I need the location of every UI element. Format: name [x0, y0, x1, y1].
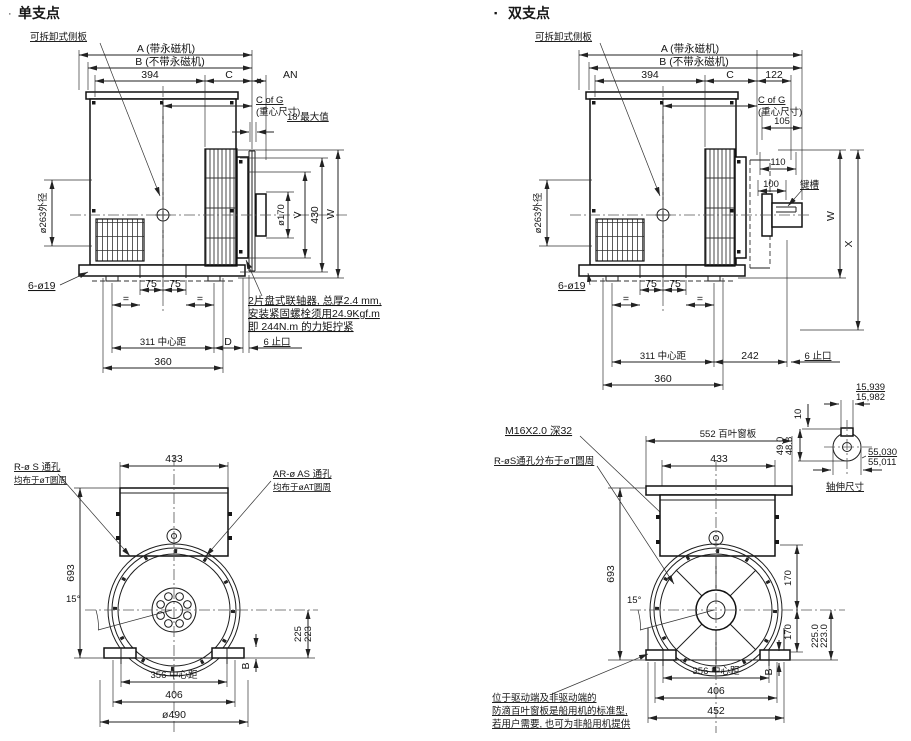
- dim-394: 394: [641, 69, 659, 81]
- dim-W: W: [325, 209, 337, 219]
- dim-433: 433: [710, 453, 728, 465]
- dim-100: 100: [763, 179, 779, 190]
- rs-holes-label: R-ø S 通孔: [14, 462, 61, 473]
- bearing-bracket: [750, 160, 772, 268]
- dim-110: 110: [770, 157, 785, 168]
- keyway-label: 键槽: [800, 179, 820, 191]
- generator-dimension-drawing: · 单支点 ▪ 双支点 可拆卸式侧板: [0, 0, 911, 741]
- dim-W: W: [825, 211, 837, 221]
- rs-holes-label-2: 均布于øT圆周: [14, 475, 67, 485]
- frame-housing: [660, 495, 775, 556]
- eq-b: =: [697, 293, 703, 305]
- dim-242: 242: [741, 350, 759, 362]
- dim-360: 360: [154, 356, 172, 368]
- dim-d170: ø170: [276, 204, 287, 226]
- air-grille: [96, 219, 144, 261]
- fan-block: [705, 149, 735, 266]
- double-bullet: ▪: [494, 8, 497, 19]
- dim-A: A (带永磁机): [661, 42, 719, 55]
- aras-holes-label: AR-ø AS 通孔: [273, 469, 332, 480]
- shaft-detail-caption: 轴伸尺寸: [826, 481, 865, 493]
- double-section-title: 双支点: [508, 5, 550, 21]
- dim-B: B (不带永磁机): [135, 55, 204, 68]
- dim-X: X: [843, 240, 855, 247]
- louvre-note-1: 位于驱动端及非驱动端的: [492, 692, 597, 704]
- single-bearing-front-view: 433 R-ø S 通孔 均布于øT圆周 AR-ø AS 通孔 均布于øAT圆周…: [14, 453, 332, 733]
- dim-75a: 75: [645, 278, 657, 290]
- dim-6d19: 6-ø19: [28, 280, 56, 292]
- dim-6stop: 6 止口: [805, 350, 832, 362]
- adapter-ring: [735, 157, 746, 258]
- dim-75b: 75: [169, 278, 181, 290]
- dim-B: B: [240, 662, 252, 669]
- dim-693: 693: [65, 564, 77, 582]
- dim-15deg: 15°: [627, 595, 642, 606]
- dim-6d19: 6-ø19: [558, 280, 586, 292]
- dim-311: 311 中心距: [140, 336, 187, 348]
- technical-drawing-page: · 单支点 ▪ 双支点 可拆卸式侧板: [0, 0, 911, 741]
- section-titles: · 单支点 ▪ 双支点: [8, 5, 550, 21]
- dim-6stop: 6 止口: [264, 336, 291, 348]
- double-bearing-side-view: 可拆卸式侧板 A: [532, 31, 864, 390]
- cog-label: C of G: [758, 95, 785, 106]
- dim-360: 360: [654, 373, 672, 385]
- shaft-end-detail: 15,939 15,982 10 49.0 48.8 55,030 55,011…: [775, 382, 897, 493]
- dim-394: 394: [141, 69, 159, 81]
- single-section-title: 单支点: [18, 5, 60, 21]
- adapter-ring: [237, 157, 248, 258]
- shaft-dia-tol-2: 55,011: [868, 457, 896, 468]
- dim-C: C: [225, 69, 233, 81]
- dim-430: 430: [309, 206, 321, 224]
- removable-panel-label: 可拆卸式侧板: [535, 31, 593, 43]
- cog-label: C of G: [256, 95, 283, 106]
- dim-B: B: [763, 668, 775, 675]
- dim-AN: AN: [283, 69, 298, 81]
- coupling-discs: [249, 151, 255, 271]
- dim-10: 10: [793, 409, 804, 420]
- dim-433: 433: [165, 453, 183, 465]
- dim-406: 406: [707, 685, 725, 697]
- dim-170a: 170: [783, 570, 794, 586]
- coupling-note-1: 2片盘式联轴器, 总厚2.4 mm,: [248, 294, 382, 307]
- dim-B: B (不带永磁机): [659, 55, 728, 68]
- dim-223: 223.0: [819, 624, 830, 648]
- dim-170b: 170: [783, 624, 794, 640]
- shaft-height-tol-2: 48.8: [784, 437, 795, 456]
- dim-15deg: 15°: [66, 594, 81, 605]
- dim-311: 311 中心距: [640, 350, 687, 362]
- removable-panel-label: 可拆卸式侧板: [30, 31, 88, 43]
- eq-a: =: [623, 293, 629, 305]
- dim-406: 406: [165, 689, 183, 701]
- fan-block: [205, 149, 237, 266]
- dim-C: C: [726, 69, 734, 81]
- coupling-note-2: 安装紧固螺栓须用24.9Kgf.m: [248, 307, 380, 320]
- dim-d263: ø263外径: [532, 192, 544, 233]
- single-bullet: ·: [8, 8, 12, 20]
- rs-holes-label: R-øS通孔分布于øT圆周: [494, 455, 594, 467]
- dim-d263: ø263外径: [37, 192, 49, 233]
- dim-552-louvre: 552 百叶窗板: [700, 428, 757, 440]
- coupling-note-3: 即 244N.m 的力矩拧紧: [248, 320, 354, 333]
- louvre-panel: [646, 486, 792, 495]
- double-bearing-front-view: M16X2.0 深32 R-øS通孔分布于øT圆周 552 百叶窗板 433 6…: [492, 425, 845, 733]
- dim-356: 356 中心距: [693, 665, 740, 677]
- louvre-note-3: 若用户需要, 也可为非船用机提供: [492, 718, 631, 730]
- dim-122: 122: [765, 69, 783, 81]
- air-grille: [596, 219, 644, 261]
- louvre-note-2: 防滴百叶窗板是船用机的标准型,: [492, 705, 628, 717]
- dim-356: 356 中心距: [151, 669, 198, 681]
- dim-d490: ø490: [162, 709, 186, 721]
- dim-75b: 75: [669, 278, 681, 290]
- dim-D: D: [224, 336, 232, 348]
- dim-A: A (带永磁机): [137, 42, 195, 55]
- dim-105: 105: [774, 116, 790, 127]
- dim-693: 693: [605, 565, 617, 583]
- keyway-width-tol-2: 15,982: [856, 392, 885, 403]
- aras-holes-label-2: 均布于øAT圆周: [273, 482, 331, 492]
- eq-b: =: [197, 293, 203, 305]
- dim-75a: 75: [145, 278, 157, 290]
- m16-tap-label: M16X2.0 深32: [505, 425, 572, 437]
- eq-a: =: [123, 293, 129, 305]
- dim-V: V: [292, 211, 304, 218]
- dim-18max: 18 最大值: [287, 111, 329, 123]
- dim-223: 223: [303, 626, 314, 642]
- dim-452: 452: [707, 705, 725, 717]
- single-bearing-side-view: 可拆卸式侧板: [28, 31, 382, 373]
- feet: [646, 628, 790, 666]
